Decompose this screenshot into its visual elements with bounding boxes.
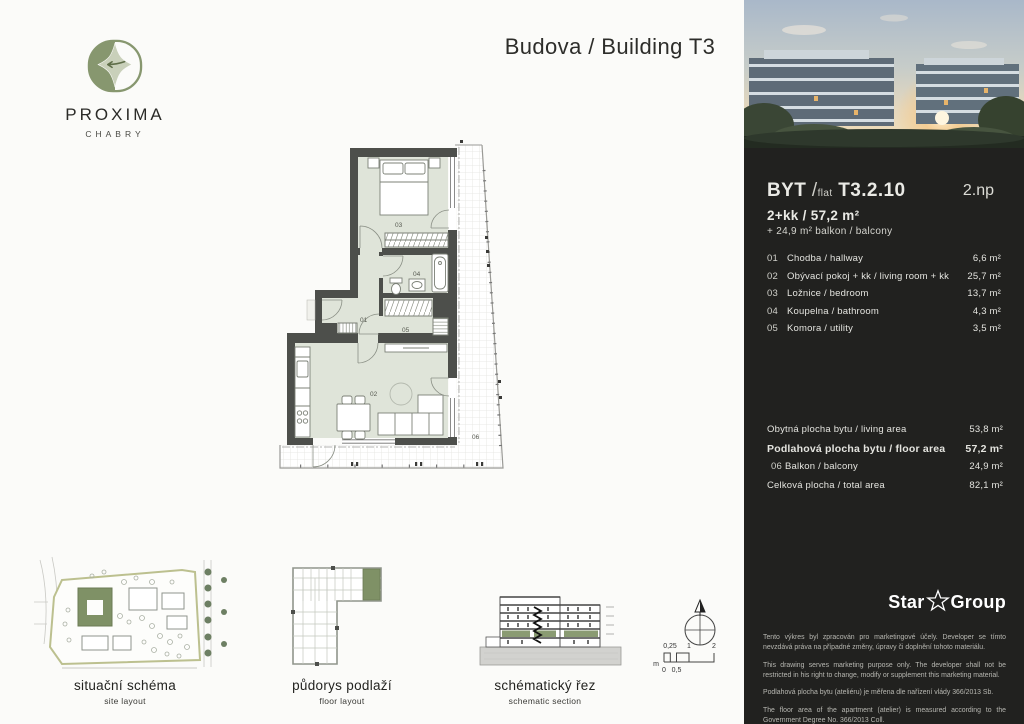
room-label-03: 03 <box>395 222 403 229</box>
highlighted-unit <box>363 569 380 600</box>
summary-label: Podlahová plocha bytu / floor area <box>767 443 965 455</box>
site-layout-diagram <box>32 552 237 674</box>
summary-value: 53,8 m² <box>969 424 1003 435</box>
proxima-logo: PROXIMA CHABRY <box>52 38 178 139</box>
summary-label: Obytná plocha bytu / living area <box>767 424 969 435</box>
room-area: 25,7 m² <box>967 271 1001 282</box>
brand-subname: CHABRY <box>52 129 178 139</box>
legal-en-2: The floor area of the apartment (atelier… <box>763 706 1006 724</box>
room-area: 4,3 m² <box>973 306 1001 317</box>
legal-en-1: This drawing serves marketing purpose on… <box>763 661 1006 682</box>
scale-bar: 0,25 1 2 m 0 0,5 <box>648 638 728 674</box>
floor-layout-diagram <box>285 556 397 671</box>
room-area: 13,7 m² <box>967 288 1001 299</box>
room-row: 03 Ložnice / bedroom 13,7 m² <box>767 288 1001 306</box>
proxima-logo-icon <box>86 38 144 94</box>
floor-layout-caption: půdorys podlaží floor layout <box>257 678 427 706</box>
room-num: 03 <box>767 288 787 299</box>
room-row: 02 Obývací pokoj + kk / living room + kk… <box>767 271 1001 289</box>
room-num: 01 <box>767 253 787 264</box>
hall-cabinet-icon <box>338 323 357 333</box>
room-name: Ložnice / bedroom <box>787 288 967 299</box>
room-label-06: 06 <box>472 434 480 441</box>
room-label-05: 05 <box>402 327 410 334</box>
summary-value: 24,9 m² <box>969 461 1003 472</box>
schematic-section-caption: schématický řez schematic section <box>460 678 630 706</box>
caption-subtitle: site layout <box>40 696 210 706</box>
caption-title: půdorys podlaží <box>257 678 427 693</box>
caption-subtitle: floor layout <box>257 696 427 706</box>
room-label-02: 02 <box>370 391 378 398</box>
washer-icon <box>385 300 432 316</box>
developer-logo: Star Group <box>888 589 1006 615</box>
summary-label: Balkon / balcony <box>785 461 969 472</box>
caption-title: schématický řez <box>460 678 630 693</box>
room-name: Chodba / hallway <box>787 253 973 264</box>
room-num: 02 <box>767 271 787 282</box>
developer-group-text: Group <box>951 592 1007 613</box>
room-area: 6,6 m² <box>973 253 1001 264</box>
scale-tick-1: 1 <box>687 643 691 650</box>
summary-row: Obytná plocha bytu / living area 53,8 m² <box>767 424 1003 443</box>
page: PROXIMA CHABRY Budova / Building T3 <box>0 0 1024 724</box>
legal-notes: Tento výkres byl zpracován pro marketing… <box>763 633 1006 724</box>
room-label-01: 01 <box>360 317 368 324</box>
room-name: Obývací pokoj + kk / living room + kk <box>787 271 967 282</box>
summary-label: Celková plocha / total area <box>767 480 969 491</box>
shelves-icon <box>433 318 448 335</box>
building-photo <box>744 0 1024 148</box>
scale-tick-2: 2 <box>712 643 716 650</box>
room-num: 05 <box>767 323 787 334</box>
scale-tick-05: 0,5 <box>672 667 682 674</box>
summary-row: Celková plocha / total area 82,1 m² <box>767 480 1003 499</box>
sink-icon <box>409 279 425 291</box>
developer-star-text: Star <box>888 592 924 613</box>
disposition: 2+kk / 57,2 m² <box>767 208 859 223</box>
balcony-note: + 24,9 m² balkon / balcony <box>767 226 892 237</box>
entry-threshold <box>307 300 315 320</box>
room-name: Koupelna / bathroom <box>787 306 973 317</box>
floor-number: 2.np <box>963 182 994 200</box>
page-title: Budova / Building T3 <box>440 34 780 60</box>
nightstand-icon <box>368 158 379 168</box>
kitchen-counter-icon <box>295 347 310 437</box>
room-num: 04 <box>767 306 787 317</box>
highlighted-floor <box>502 631 598 638</box>
room-row: 01 Chodba / hallway 6,6 m² <box>767 253 1001 271</box>
scale-tick-0: 0 <box>662 667 666 674</box>
room-label-04: 04 <box>413 271 421 278</box>
room-area: 3,5 m² <box>973 323 1001 334</box>
sidebar: BYT /flat T3.2.10 2.np 2+kk / 57,2 m² + … <box>744 0 1024 724</box>
area-summary: Obytná plocha bytu / living area 53,8 m²… <box>767 424 1003 498</box>
sideboard-icon <box>385 344 447 352</box>
floor-plan: 01 02 03 04 05 06 <box>255 130 575 480</box>
caption-title: situační schéma <box>40 678 210 693</box>
brand-name: PROXIMA <box>52 105 178 125</box>
legal-cz-1: Tento výkres byl zpracován pro marketing… <box>763 633 1006 654</box>
summary-value: 82,1 m² <box>969 480 1003 491</box>
summary-row-floor-area: Podlahová plocha bytu / floor area 57,2 … <box>767 443 1003 462</box>
room-row: 04 Koupelna / bathroom 4,3 m² <box>767 306 1001 324</box>
schematic-section-diagram <box>478 585 623 670</box>
star-icon <box>926 589 950 613</box>
unit-heading: BYT /flat T3.2.10 <box>767 180 905 202</box>
summary-num: 06 <box>767 461 785 472</box>
toilet-icon <box>390 278 402 295</box>
room-list: 01 Chodba / hallway 6,6 m² 02 Obývací po… <box>767 253 1001 341</box>
legal-cz-2: Podlahová plocha bytu (ateliéru) je měře… <box>763 688 1006 698</box>
site-layout-caption: situační schéma site layout <box>40 678 210 706</box>
scale-unit: m <box>653 661 659 668</box>
wardrobe-icon <box>385 233 448 247</box>
scale-tick-025: 0,25 <box>663 643 677 650</box>
room-name: Komora / utility <box>787 323 973 334</box>
highlighted-building <box>78 588 112 626</box>
bed-icon <box>380 160 428 215</box>
summary-value: 57,2 m² <box>965 443 1003 455</box>
unit-code: T3.2.10 <box>838 180 905 201</box>
floor-level-marks <box>606 607 614 634</box>
summary-row: 06 Balkon / balcony 24,9 m² <box>767 461 1003 480</box>
bathtub-icon <box>432 254 448 292</box>
byt-label: BYT <box>767 180 806 201</box>
caption-subtitle: schematic section <box>460 696 630 706</box>
room-row: 05 Komora / utility 3,5 m² <box>767 323 1001 341</box>
nightstand-icon <box>429 158 440 168</box>
street-trees <box>205 569 228 657</box>
flat-label: flat <box>818 188 833 199</box>
